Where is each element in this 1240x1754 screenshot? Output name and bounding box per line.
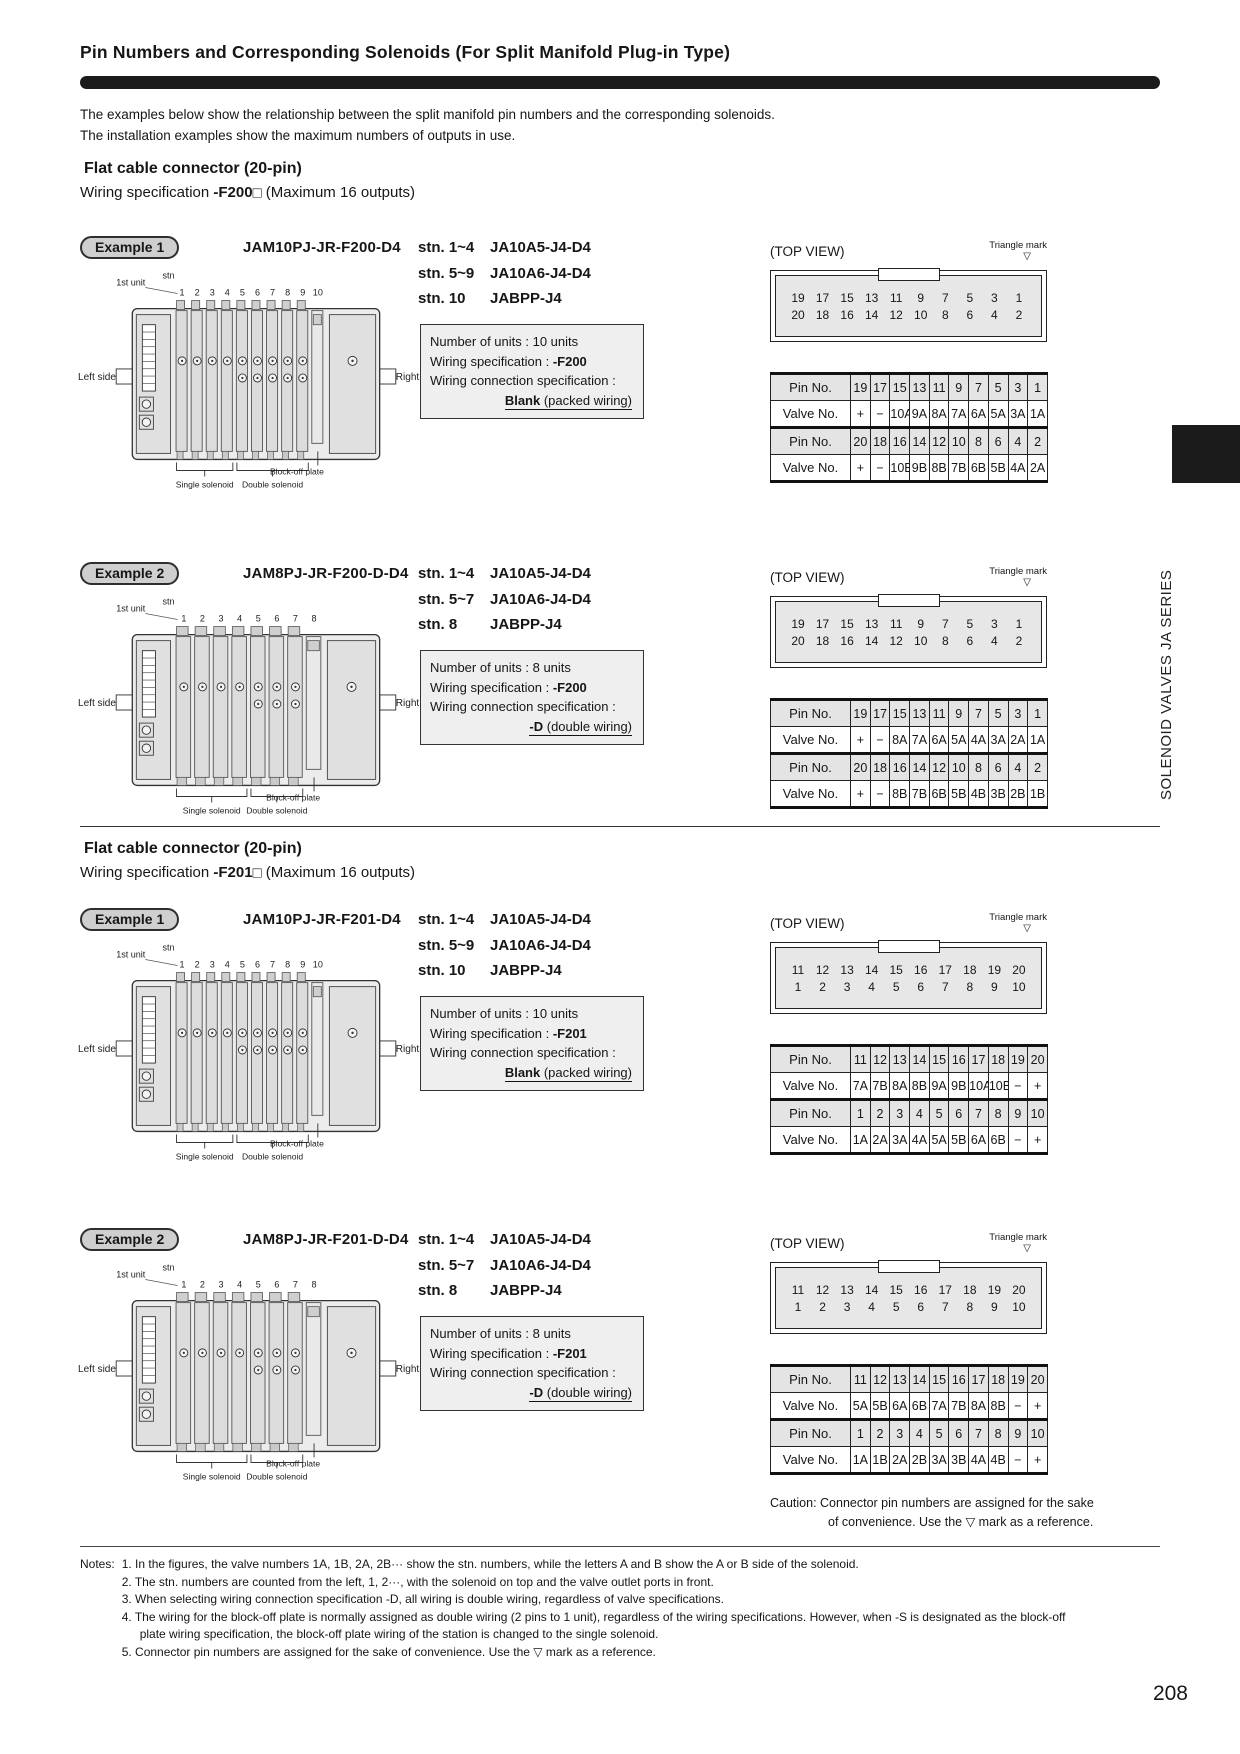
svg-text:5: 5 — [240, 960, 245, 970]
svg-text:10: 10 — [313, 288, 323, 298]
connector-pin-number: 17 — [813, 617, 833, 631]
table-row: Pin No.12345678910 — [771, 1100, 1048, 1127]
page-title: Pin Numbers and Corresponding Solenoids … — [80, 42, 730, 63]
connector-pin-number: 15 — [837, 291, 857, 305]
table-cell: − — [870, 455, 890, 482]
spec-connection-label: Wiring connection specification : — [430, 371, 634, 391]
table-cell: 1 — [851, 1420, 871, 1447]
table-cell: 15 — [890, 700, 910, 727]
svg-text:stn: stn — [162, 1262, 174, 1272]
connector-pin-row: 12345678910 — [784, 980, 1033, 994]
connector-pin-number: 19 — [984, 963, 1004, 977]
table-cell: 8A — [969, 1393, 989, 1420]
table-cell: 1B — [870, 1447, 890, 1474]
table-cell: 17 — [870, 374, 890, 401]
note-item: 1. In the figures, the valve numbers 1A,… — [122, 1556, 1080, 1574]
page-number: 208 — [1108, 1682, 1188, 1706]
triangle-mark-label: Triangle mark — [989, 1232, 1047, 1243]
svg-text:Double solenoid: Double solenoid — [246, 806, 307, 816]
table-row: Pin No.2018161412108642 — [771, 754, 1048, 781]
table-cell: 6 — [988, 428, 1008, 455]
svg-text:Single solenoid: Single solenoid — [183, 1472, 241, 1482]
connector-pin-number: 6 — [911, 1300, 931, 1314]
section-heading-f201: Flat cable connector (20-pin) Wiring spe… — [80, 840, 415, 881]
spec-wiring: Wiring specification : -F201 — [430, 1024, 634, 1044]
manifold-drawing: 123456781st unitstnLeft sideRight sideSi… — [78, 590, 440, 824]
table-cell: 5 — [929, 1420, 949, 1447]
connector-pin-number: 3 — [984, 617, 1004, 631]
row-label: Valve No. — [771, 1447, 851, 1474]
pin-valve-table-grid: Pin No.11121314151617181920Valve No.5A5B… — [770, 1364, 1048, 1475]
series-side-label: SOLENOID VALVES JA SERIES — [1158, 488, 1175, 800]
svg-text:2: 2 — [200, 614, 205, 624]
table-cell: 4 — [910, 1100, 930, 1127]
table-cell: 7B — [870, 1073, 890, 1100]
spec-units: Number of units : 10 units — [430, 332, 634, 352]
table-cell: 9B — [949, 1073, 969, 1100]
station-assignment-row: stn. 5~9JA10A6-J4-D4 — [418, 265, 591, 291]
connector-pin-number: 10 — [1009, 980, 1029, 994]
example-block-f201-2: Example 2 JAM8PJ-JR-F201-D-D4 stn. 1~4JA… — [80, 1222, 1160, 1522]
table-cell: 9A — [929, 1073, 949, 1100]
connector-top-view: 1112131415161718192012345678910 — [770, 942, 1047, 1014]
station-valve-model: JA10A6-J4-D4 — [490, 265, 591, 282]
connector-pin-number: 10 — [911, 634, 931, 648]
svg-text:1: 1 — [180, 960, 185, 970]
table-cell: 10 — [949, 428, 969, 455]
triangle-mark-label: Triangle mark — [989, 566, 1047, 577]
svg-text:6: 6 — [255, 288, 260, 298]
table-row: Valve No.5A5B6A6B7A7B8A8B−+ — [771, 1393, 1048, 1420]
svg-text:stn: stn — [162, 596, 174, 606]
notes: Notes: 1. In the figures, the valve numb… — [80, 1556, 1080, 1661]
connector-pin-number: 3 — [837, 1300, 857, 1314]
table-cell: 4A — [910, 1127, 930, 1154]
connector-pin-number: 16 — [837, 634, 857, 648]
table-cell: 5 — [929, 1100, 949, 1127]
table-cell: 4 — [910, 1420, 930, 1447]
station-assignments: stn. 1~4JA10A5-J4-D4 stn. 5~7JA10A6-J4-D… — [418, 1231, 591, 1308]
manifold-drawing: 123456781st unitstnLeft sideRight sideSi… — [78, 1256, 440, 1490]
connector-pin-number: 13 — [837, 1283, 857, 1297]
table-cell: 12 — [870, 1046, 890, 1073]
svg-text:Single solenoid: Single solenoid — [176, 480, 234, 490]
station-valve-model: JA10A6-J4-D4 — [490, 1257, 591, 1274]
table-cell: − — [870, 781, 890, 808]
intro-line-1: The examples below show the relationship… — [80, 104, 775, 125]
table-cell: 7A — [949, 401, 969, 428]
table-cell: 9 — [1008, 1420, 1028, 1447]
table-cell: 9 — [949, 374, 969, 401]
table-cell: 3B — [988, 781, 1008, 808]
svg-text:Double solenoid: Double solenoid — [242, 1152, 303, 1162]
connector-pin-number: 20 — [788, 308, 808, 322]
spec-box: Number of units : 10 units Wiring specif… — [420, 996, 644, 1091]
connector-pin-number: 12 — [886, 308, 906, 322]
triangle-mark-icon: ▽ — [1023, 251, 1047, 262]
table-cell: 7B — [949, 455, 969, 482]
svg-text:9: 9 — [300, 960, 305, 970]
table-cell: 3 — [890, 1420, 910, 1447]
table-cell: 8 — [969, 428, 989, 455]
table-cell: 6B — [969, 455, 989, 482]
station-assignments: stn. 1~4JA10A5-J4-D4 stn. 5~9JA10A6-J4-D… — [418, 911, 591, 988]
station-valve-model: JA10A6-J4-D4 — [490, 937, 591, 954]
manifold-drawing: 123456789101st unitstnLeft sideRight sid… — [78, 936, 440, 1170]
spec-box: Number of units : 10 units Wiring specif… — [420, 324, 644, 419]
row-label: Pin No. — [771, 1420, 851, 1447]
svg-text:6: 6 — [274, 1280, 279, 1290]
connector-pin-number: 5 — [886, 1300, 906, 1314]
spec-connection-code: Blank — [505, 1065, 540, 1080]
connector-pin-number: 13 — [837, 963, 857, 977]
connector-body: 1112131415161718192012345678910 — [775, 1267, 1042, 1329]
table-cell: + — [851, 455, 871, 482]
table-cell: 7A — [929, 1393, 949, 1420]
station-assignments: stn. 1~4JA10A5-J4-D4 stn. 5~9JA10A6-J4-D… — [418, 239, 591, 316]
series-edge-tab — [1172, 425, 1240, 483]
table-cell: 2A — [870, 1127, 890, 1154]
svg-text:Block-off plate: Block-off plate — [270, 1139, 324, 1149]
spec-connection-value: -D (double wiring) — [430, 717, 634, 737]
connector-pin-number: 14 — [862, 308, 882, 322]
station-assignment-row: stn. 5~7JA10A6-J4-D4 — [418, 591, 591, 617]
svg-text:10: 10 — [313, 960, 323, 970]
table-row: Pin No.11121314151617181920 — [771, 1046, 1048, 1073]
svg-text:2: 2 — [195, 288, 200, 298]
svg-text:5: 5 — [240, 288, 245, 298]
table-cell: 11 — [929, 374, 949, 401]
spec-wiring: Wiring specification : -F200 — [430, 352, 634, 372]
table-cell: 12 — [870, 1366, 890, 1393]
manifold-drawing: 123456789101st unitstnLeft sideRight sid… — [78, 264, 440, 498]
pin-valve-table-grid: Pin No.191715131197531Valve No.+−8A7A6A5… — [770, 698, 1048, 809]
connector-pin-number: 18 — [813, 308, 833, 322]
table-cell: 1 — [851, 1100, 871, 1127]
table-cell: 5 — [988, 374, 1008, 401]
triangle-mark: Triangle mark▽ — [910, 912, 1047, 934]
connector-pin-number: 12 — [813, 1283, 833, 1297]
table-cell: − — [1008, 1393, 1028, 1420]
connector-pin-number: 18 — [960, 963, 980, 977]
title-underline-bar — [80, 76, 1160, 89]
row-label: Pin No. — [771, 1366, 851, 1393]
spec-connection-value: Blank (packed wiring) — [430, 1063, 634, 1083]
table-cell: 4B — [988, 1447, 1008, 1474]
table-cell: 20 — [851, 428, 871, 455]
top-view-label: (TOP VIEW) — [770, 1236, 845, 1251]
connector-body: 1917151311975312018161412108642 — [775, 601, 1042, 663]
spec-connection-rest: (double wiring) — [543, 1385, 632, 1400]
connector-pin-number: 17 — [935, 1283, 955, 1297]
station-valve-model: JABPP-J4 — [490, 616, 562, 633]
connector-notch — [878, 594, 940, 607]
table-cell: 6B — [929, 781, 949, 808]
table-row: Pin No.191715131197531 — [771, 700, 1048, 727]
spec-wiring-label: Wiring specification : — [430, 1346, 553, 1361]
table-cell: 8A — [890, 1073, 910, 1100]
connector-pin-number: 14 — [862, 963, 882, 977]
connector-pin-row: 191715131197531 — [784, 291, 1033, 305]
table-cell: 4A — [969, 727, 989, 754]
station-assignments: stn. 1~4JA10A5-J4-D4 stn. 5~7JA10A6-J4-D… — [418, 565, 591, 642]
svg-text:3: 3 — [210, 960, 215, 970]
row-label: Pin No. — [771, 1100, 851, 1127]
table-cell: 14 — [910, 1046, 930, 1073]
table-cell: 2B — [1008, 781, 1028, 808]
table-cell: 13 — [890, 1366, 910, 1393]
row-label: Valve No. — [771, 455, 851, 482]
spec-connection-rest: (double wiring) — [543, 719, 632, 734]
connector-pin-number: 11 — [788, 963, 808, 977]
spec-box: Number of units : 8 units Wiring specifi… — [420, 650, 644, 745]
section-title: Flat cable connector (20-pin) — [80, 160, 415, 178]
table-cell: 5A — [851, 1393, 871, 1420]
table-cell: 11 — [851, 1046, 871, 1073]
table-cell: 9 — [1008, 1100, 1028, 1127]
pin-valve-table-grid: Pin No.191715131197531Valve No.+−10A9A8A… — [770, 372, 1048, 483]
spec-connection-value: Blank (packed wiring) — [430, 391, 634, 411]
catalog-page: Pin Numbers and Corresponding Solenoids … — [0, 0, 1240, 1754]
model-number: JAM10PJ-JR-F200-D4 — [243, 239, 401, 256]
table-cell: 2 — [1028, 754, 1048, 781]
table-cell: 19 — [1008, 1046, 1028, 1073]
spec-connection-rest: (packed wiring) — [540, 1065, 632, 1080]
connector-pin-number: 18 — [813, 634, 833, 648]
table-cell: 8A — [890, 727, 910, 754]
example-badge: Example 1 — [80, 236, 179, 259]
station-valve-model: JA10A5-J4-D4 — [490, 239, 591, 256]
table-cell: 7B — [910, 781, 930, 808]
table-cell: 18 — [870, 428, 890, 455]
connector-pin-number: 20 — [1009, 963, 1029, 977]
table-cell: − — [1008, 1447, 1028, 1474]
connector-pin-number: 5 — [886, 980, 906, 994]
table-cell: + — [1028, 1127, 1048, 1154]
connector-top-view: 1917151311975312018161412108642 — [770, 596, 1047, 668]
svg-text:2: 2 — [200, 1280, 205, 1290]
connector-pin-number: 15 — [886, 1283, 906, 1297]
table-cell: + — [851, 727, 871, 754]
spec-connection-value: -D (double wiring) — [430, 1383, 634, 1403]
connector-pin-number: 1 — [1009, 617, 1029, 631]
table-cell: 3 — [1008, 700, 1028, 727]
connector-pin-number: 17 — [813, 291, 833, 305]
table-cell: + — [1028, 1447, 1048, 1474]
connector-pin-number: 6 — [960, 308, 980, 322]
manifold-diagram: 123456789101st unitstnLeft sideRight sid… — [78, 264, 440, 498]
caution-line-1: Caution: Connector pin numbers are assig… — [770, 1494, 1094, 1513]
svg-text:6: 6 — [255, 960, 260, 970]
table-cell: 10A — [969, 1073, 989, 1100]
triangle-mark-label: Triangle mark — [989, 912, 1047, 923]
svg-text:stn: stn — [162, 942, 174, 952]
station-valve-model: JABPP-J4 — [490, 962, 562, 979]
connector-pin-number: 17 — [935, 963, 955, 977]
connector-pin-number: 11 — [788, 1283, 808, 1297]
connector-pin-number: 6 — [911, 980, 931, 994]
svg-text:7: 7 — [293, 1280, 298, 1290]
row-label: Valve No. — [771, 781, 851, 808]
table-cell: 16 — [949, 1046, 969, 1073]
table-cell: 5A — [988, 401, 1008, 428]
table-cell: 3A — [1008, 401, 1028, 428]
notes-label: Notes: — [80, 1556, 115, 1661]
pin-valve-table: Pin No.191715131197531Valve No.+−8A7A6A5… — [770, 698, 1048, 809]
connector-pin-number: 1 — [1009, 291, 1029, 305]
table-cell: 2A — [1028, 455, 1048, 482]
table-cell: 6B — [910, 1393, 930, 1420]
wiring-spec-code: -F200 — [213, 184, 252, 201]
table-cell: 6 — [949, 1100, 969, 1127]
connector-pin-number: 4 — [862, 1300, 882, 1314]
top-view-label: (TOP VIEW) — [770, 244, 845, 259]
spec-connection-code: Blank — [505, 393, 540, 408]
connector-pin-number: 16 — [911, 1283, 931, 1297]
table-cell: 6A — [969, 401, 989, 428]
table-cell: 7A — [910, 727, 930, 754]
connector-pin-number: 7 — [935, 980, 955, 994]
caution-line-2: of convenience. Use the ▽ mark as a refe… — [828, 1513, 1094, 1532]
table-cell: 15 — [929, 1046, 949, 1073]
table-cell: 9 — [949, 700, 969, 727]
table-cell: 17 — [870, 700, 890, 727]
table-cell: 12 — [929, 428, 949, 455]
svg-text:1: 1 — [181, 1280, 186, 1290]
connector-pin-row: 2018161412108642 — [784, 634, 1033, 648]
svg-text:stn: stn — [162, 270, 174, 280]
station-assignment-row: stn. 10JABPP-J4 — [418, 290, 591, 316]
connector-pin-row: 11121314151617181920 — [784, 963, 1033, 977]
note-item: 3. When selecting wiring connection spec… — [122, 1591, 1080, 1609]
connector-pin-number: 5 — [960, 291, 980, 305]
note-item: 2. The stn. numbers are counted from the… — [122, 1574, 1080, 1592]
table-row: Valve No.1A1B2A2B3A3B4A4B−+ — [771, 1447, 1048, 1474]
station-valve-model: JA10A5-J4-D4 — [490, 1231, 591, 1248]
table-row: Valve No.+−8A7A6A5A4A3A2A1A — [771, 727, 1048, 754]
example-block-f200-1: Example 1 JAM10PJ-JR-F200-D4 stn. 1~4JA1… — [80, 230, 1160, 530]
connector-pin-number: 2 — [1009, 634, 1029, 648]
table-row: Valve No.+−8B7B6B5B4B3B2B1B — [771, 781, 1048, 808]
table-cell: 4A — [1008, 455, 1028, 482]
table-cell: 1A — [1028, 727, 1048, 754]
table-cell: 19 — [851, 700, 871, 727]
table-cell: 4 — [1008, 428, 1028, 455]
table-cell: 6 — [949, 1420, 969, 1447]
manifold-diagram: 123456789101st unitstnLeft sideRight sid… — [78, 936, 440, 1170]
connector-pin-number: 10 — [911, 308, 931, 322]
connector-pin-number: 4 — [862, 980, 882, 994]
connector-pin-number: 9 — [984, 980, 1004, 994]
row-label: Valve No. — [771, 727, 851, 754]
table-cell: 20 — [1028, 1366, 1048, 1393]
triangle-mark: Triangle mark▽ — [910, 566, 1047, 588]
pin-valve-table-grid: Pin No.11121314151617181920Valve No.7A7B… — [770, 1044, 1048, 1155]
table-cell: + — [851, 401, 871, 428]
manifold-diagram: 123456781st unitstnLeft sideRight sideSi… — [78, 1256, 440, 1490]
wiring-spec-line: Wiring specification -F201□ (Maximum 16 … — [80, 864, 415, 881]
table-cell: 6 — [988, 754, 1008, 781]
connector-pin-row: 12345678910 — [784, 1300, 1033, 1314]
svg-text:Left side: Left side — [78, 698, 116, 709]
station-range: stn. 1~4 — [418, 565, 490, 582]
top-view-label: (TOP VIEW) — [770, 570, 845, 585]
table-cell: 4A — [969, 1447, 989, 1474]
row-label: Valve No. — [771, 1393, 851, 1420]
manifold-diagram: 123456781st unitstnLeft sideRight sideSi… — [78, 590, 440, 824]
table-cell: − — [1008, 1127, 1028, 1154]
notes-list: 1. In the figures, the valve numbers 1A,… — [122, 1556, 1080, 1661]
table-cell: 1 — [1028, 700, 1048, 727]
svg-text:Block-off plate: Block-off plate — [270, 467, 324, 477]
example-block-f201-1: Example 1 JAM10PJ-JR-F201-D4 stn. 1~4JA1… — [80, 902, 1160, 1202]
model-number: JAM10PJ-JR-F201-D4 — [243, 911, 401, 928]
connector-pin-row: 2018161412108642 — [784, 308, 1033, 322]
svg-text:Left side: Left side — [78, 1044, 116, 1055]
station-range: stn. 1~4 — [418, 239, 490, 256]
svg-text:8: 8 — [312, 1280, 317, 1290]
spec-units: Number of units : 10 units — [430, 1004, 634, 1024]
table-row: Pin No.12345678910 — [771, 1420, 1048, 1447]
connector-notch — [878, 940, 940, 953]
option-box-symbol: □ — [253, 185, 262, 202]
table-cell: 15 — [929, 1366, 949, 1393]
spec-wiring: Wiring specification : -F201 — [430, 1344, 634, 1364]
table-cell: 18 — [870, 754, 890, 781]
connector-pin-number: 8 — [960, 1300, 980, 1314]
table-cell: + — [1028, 1393, 1048, 1420]
table-cell: 14 — [910, 754, 930, 781]
station-assignment-row: stn. 8JABPP-J4 — [418, 616, 591, 642]
station-assignment-row: stn. 8JABPP-J4 — [418, 1282, 591, 1308]
svg-text:3: 3 — [219, 614, 224, 624]
wiring-spec-line: Wiring specification -F200□ (Maximum 16 … — [80, 184, 415, 201]
note-item: 5. Connector pin numbers are assigned fo… — [122, 1644, 1080, 1662]
svg-text:7: 7 — [293, 614, 298, 624]
svg-text:Block-off plate: Block-off plate — [266, 1459, 320, 1469]
connector-pin-number: 12 — [813, 963, 833, 977]
table-cell: 5B — [949, 781, 969, 808]
table-row: Pin No.11121314151617181920 — [771, 1366, 1048, 1393]
connector-pin-row: 11121314151617181920 — [784, 1283, 1033, 1297]
station-range: stn. 1~4 — [418, 911, 490, 928]
table-cell: 1B — [1028, 781, 1048, 808]
table-cell: 3A — [890, 1127, 910, 1154]
table-cell: 5A — [949, 727, 969, 754]
station-valve-model: JA10A5-J4-D4 — [490, 565, 591, 582]
svg-text:4: 4 — [225, 960, 230, 970]
connector-pin-number: 20 — [788, 634, 808, 648]
station-assignment-row: stn. 10JABPP-J4 — [418, 962, 591, 988]
table-cell: 11 — [929, 700, 949, 727]
table-cell: 20 — [1028, 1046, 1048, 1073]
connector-pin-number: 11 — [886, 291, 906, 305]
model-number: JAM8PJ-JR-F201-D-D4 — [243, 1231, 409, 1248]
table-cell: 17 — [969, 1366, 989, 1393]
connector-notch — [878, 268, 940, 281]
triangle-mark-label: Triangle mark — [989, 240, 1047, 251]
station-assignment-row: stn. 1~4JA10A5-J4-D4 — [418, 565, 591, 591]
connector-pin-number: 1 — [788, 1300, 808, 1314]
row-label: Valve No. — [771, 401, 851, 428]
svg-text:6: 6 — [274, 614, 279, 624]
wiring-spec-pre: Wiring specification — [80, 864, 213, 881]
table-row: Valve No.7A7B8A8B9A9B10A10B−+ — [771, 1073, 1048, 1100]
row-label: Pin No. — [771, 428, 851, 455]
connector-top-view: 1112131415161718192012345678910 — [770, 1262, 1047, 1334]
row-label: Pin No. — [771, 700, 851, 727]
section-divider — [80, 826, 1160, 827]
